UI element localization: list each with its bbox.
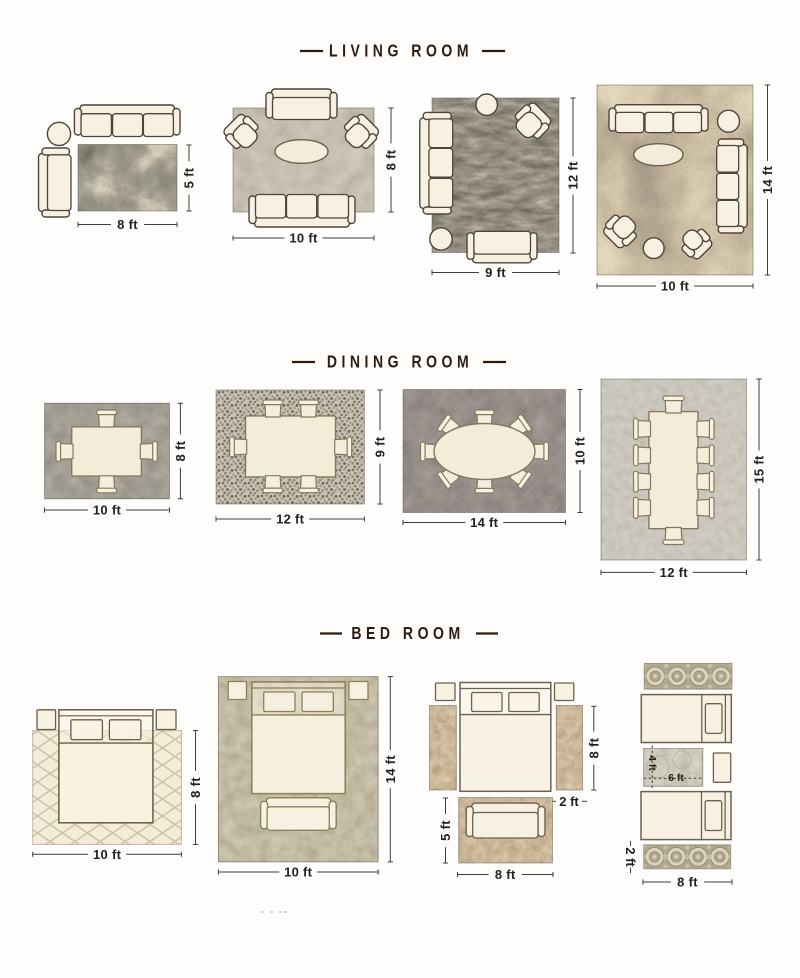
svg-text:12 ft: 12 ft [276,512,305,527]
svg-text:4 ft: 4 ft [646,755,658,771]
svg-text:5 ft: 5 ft [438,820,453,841]
svg-text:2 ft: 2 ft [559,794,579,809]
svg-text:8 ft: 8 ft [188,777,203,798]
svg-text:8 ft: 8 ft [384,149,399,170]
svg-text:14 ft: 14 ft [383,755,398,784]
svg-text:LIVING ROOM: LIVING ROOM [329,41,473,61]
svg-text:10 ft: 10 ft [284,865,313,880]
svg-text:12 ft: 12 ft [660,565,689,580]
svg-text:14 ft: 14 ft [760,166,775,195]
svg-text:8 ft: 8 ft [586,737,601,758]
svg-text:BED ROOM: BED ROOM [351,623,464,643]
svg-text:9 ft: 9 ft [373,436,388,457]
svg-text:10 ft: 10 ft [661,279,690,294]
svg-text:12 ft: 12 ft [566,161,581,190]
svg-text:10 ft: 10 ft [93,503,122,518]
svg-text:10 ft: 10 ft [573,437,588,466]
svg-text:5 ft: 5 ft [182,167,197,188]
svg-text:8 ft: 8 ft [495,867,516,882]
svg-text:15 ft: 15 ft [752,455,767,484]
svg-text:10 ft: 10 ft [289,231,318,246]
svg-text:8 ft: 8 ft [117,217,138,232]
svg-text:2 ft: 2 ft [623,847,638,867]
svg-text:10 ft: 10 ft [93,847,122,862]
svg-text:9 ft: 9 ft [485,265,506,280]
svg-text:8 ft: 8 ft [173,440,188,461]
svg-text:6 ft: 6 ft [668,772,684,784]
svg-text:8 ft: 8 ft [677,875,698,890]
svg-text:DINING ROOM: DINING ROOM [327,352,473,372]
svg-text:14 ft: 14 ft [470,515,499,530]
